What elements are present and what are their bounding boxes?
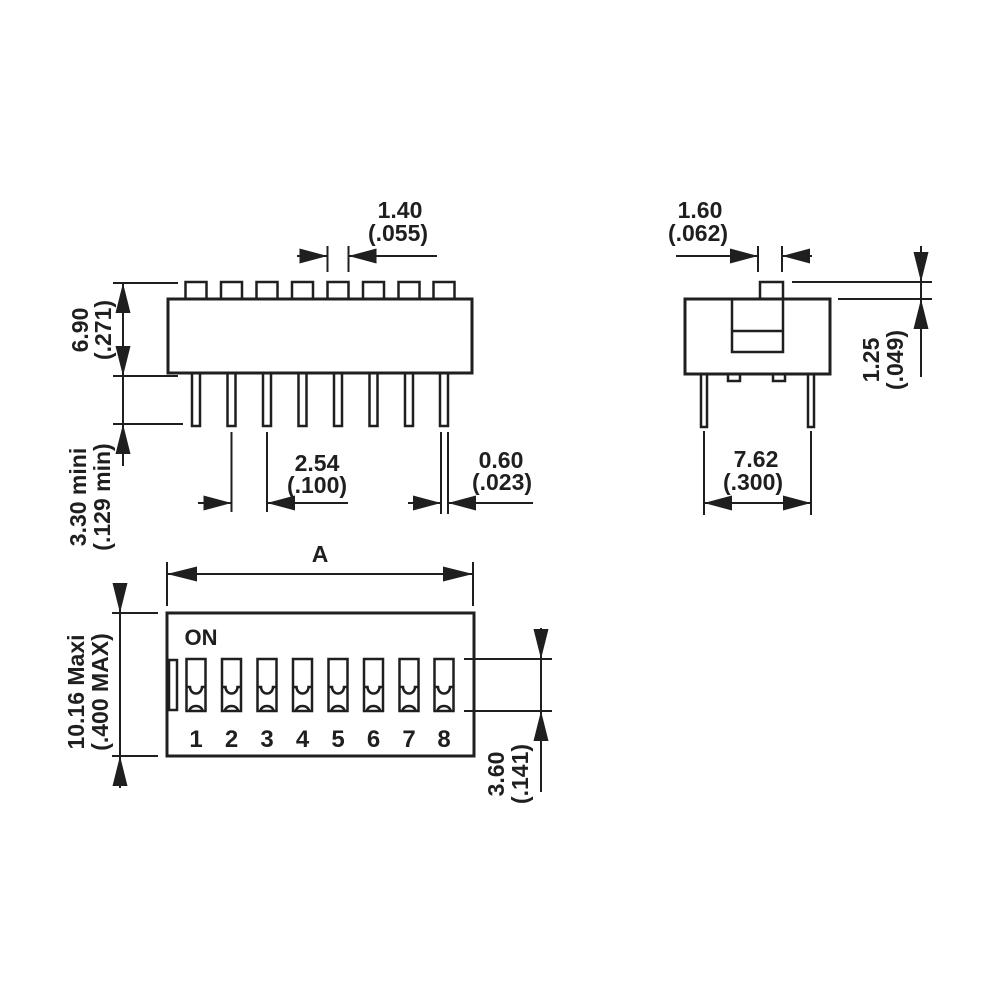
front-body <box>168 299 472 373</box>
switch-slot <box>258 659 277 711</box>
front-actuator-tabs <box>186 282 455 299</box>
dim-label-inch: (.400 MAX) <box>87 633 113 751</box>
switch-number: 4 <box>296 726 310 753</box>
dim-label-inch: (.300) <box>723 469 783 495</box>
arrowhead <box>349 249 377 264</box>
arrowhead <box>204 496 232 511</box>
pin <box>701 374 707 427</box>
arrowhead <box>116 283 131 313</box>
arrowhead <box>704 496 732 511</box>
on-label: ON <box>185 625 218 650</box>
actuator-tab <box>186 282 207 299</box>
dim-label-mm: 10.16 Maxi <box>63 634 89 749</box>
switch-number: 8 <box>437 726 450 753</box>
arrowhead <box>730 249 758 264</box>
dim-actuator-width: 1.60 (.062) <box>668 197 812 272</box>
arrowhead <box>443 567 473 582</box>
dim-label-inch: (.023) <box>472 469 532 495</box>
arrowhead <box>914 299 929 329</box>
dim-actuator-height: 1.25 (.049) <box>792 246 932 390</box>
switch-slot <box>364 659 383 711</box>
pin <box>370 373 378 426</box>
pin <box>440 373 448 426</box>
switch-slot <box>435 659 454 711</box>
pin <box>299 373 307 426</box>
pin <box>334 373 342 426</box>
pin <box>405 373 413 426</box>
dip-switch-technical-drawing: 1.40 (.055) 6.90 (.271) 3.30 mini (.129 … <box>0 0 1000 1000</box>
switch-slot <box>293 659 312 711</box>
switch-slot <box>329 659 348 711</box>
pin <box>228 373 236 426</box>
actuator-tab <box>399 282 420 299</box>
dim-label-inch: (.141) <box>507 744 533 804</box>
switch-number: 3 <box>260 726 273 753</box>
top-view: ON <box>63 541 552 804</box>
dim-label-inch: (.055) <box>368 220 428 246</box>
arrowhead <box>914 252 929 282</box>
switch-slots <box>187 659 454 711</box>
drawing-canvas: 1.40 (.055) 6.90 (.271) 3.30 mini (.129 … <box>0 0 1000 1000</box>
front-view: 1.40 (.055) 6.90 (.271) 3.30 mini (.129 … <box>65 197 533 551</box>
arrowhead <box>300 249 328 264</box>
side-body <box>685 299 830 374</box>
dim-label-inch: (.100) <box>287 472 347 498</box>
arrowhead <box>448 496 476 511</box>
dim-body-height: 6.90 (.271) 3.30 mini (.129 min) <box>65 283 183 551</box>
arrowhead <box>113 583 128 613</box>
switch-slot <box>400 659 419 711</box>
switch-number: 2 <box>225 726 238 753</box>
arrowhead <box>167 567 197 582</box>
arrowhead <box>783 496 811 511</box>
front-pins <box>192 373 448 426</box>
dim-label-inch: (.271) <box>90 300 116 360</box>
dim-slot-length: 3.60 (.141) <box>464 628 552 804</box>
pin <box>192 373 200 426</box>
arrowhead <box>116 424 131 454</box>
switch-slot <box>222 659 241 711</box>
dim-pin-pitch: 2.54 (.100) <box>198 432 348 512</box>
actuator-tab <box>434 282 455 299</box>
actuator-tab <box>292 282 313 299</box>
arrowhead <box>534 711 549 741</box>
actuator-tab <box>257 282 278 299</box>
arrowhead <box>113 756 128 786</box>
switch-numbers: 1 2 3 4 5 6 7 8 <box>189 726 450 753</box>
dim-label-inch: (.062) <box>668 220 728 246</box>
switch-number: 1 <box>189 726 202 753</box>
dim-actuator-tab-width: 1.40 (.055) <box>297 197 437 272</box>
dim-label-mm: 3.60 <box>483 752 509 797</box>
switch-number: 6 <box>367 726 380 753</box>
arrowhead <box>413 496 441 511</box>
actuator-tab <box>363 282 384 299</box>
dim-body-width: 10.16 Maxi (.400 MAX) <box>63 583 158 788</box>
pin <box>263 373 271 426</box>
arrowhead <box>116 346 131 376</box>
top-end-plate <box>169 660 177 710</box>
dim-label-inch: (.049) <box>882 330 908 390</box>
arrowhead <box>534 629 549 659</box>
actuator-tab <box>221 282 242 299</box>
arrowhead <box>782 249 810 264</box>
dim-pin-row-spacing: 7.62 (.300) <box>704 431 811 515</box>
dim-label-mm: 1.25 <box>858 337 884 382</box>
dim-pin-width: 0.60 (.023) <box>408 432 533 514</box>
side-view: 1.60 (.062) 1.25 (.049) 7.62 (.300) <box>668 197 932 515</box>
switch-number: 5 <box>331 726 344 753</box>
side-actuator-tab <box>760 282 783 299</box>
pin <box>808 374 814 427</box>
dim-label-inch: (.129 min) <box>89 443 115 550</box>
switch-slot <box>187 659 206 711</box>
dim-label-mm: 3.30 mini <box>65 448 91 546</box>
side-slot <box>732 299 783 352</box>
actuator-tab <box>328 282 349 299</box>
switch-number: 7 <box>402 726 415 753</box>
dim-overall-length: A <box>167 541 473 606</box>
dim-label-length: A <box>312 541 329 567</box>
